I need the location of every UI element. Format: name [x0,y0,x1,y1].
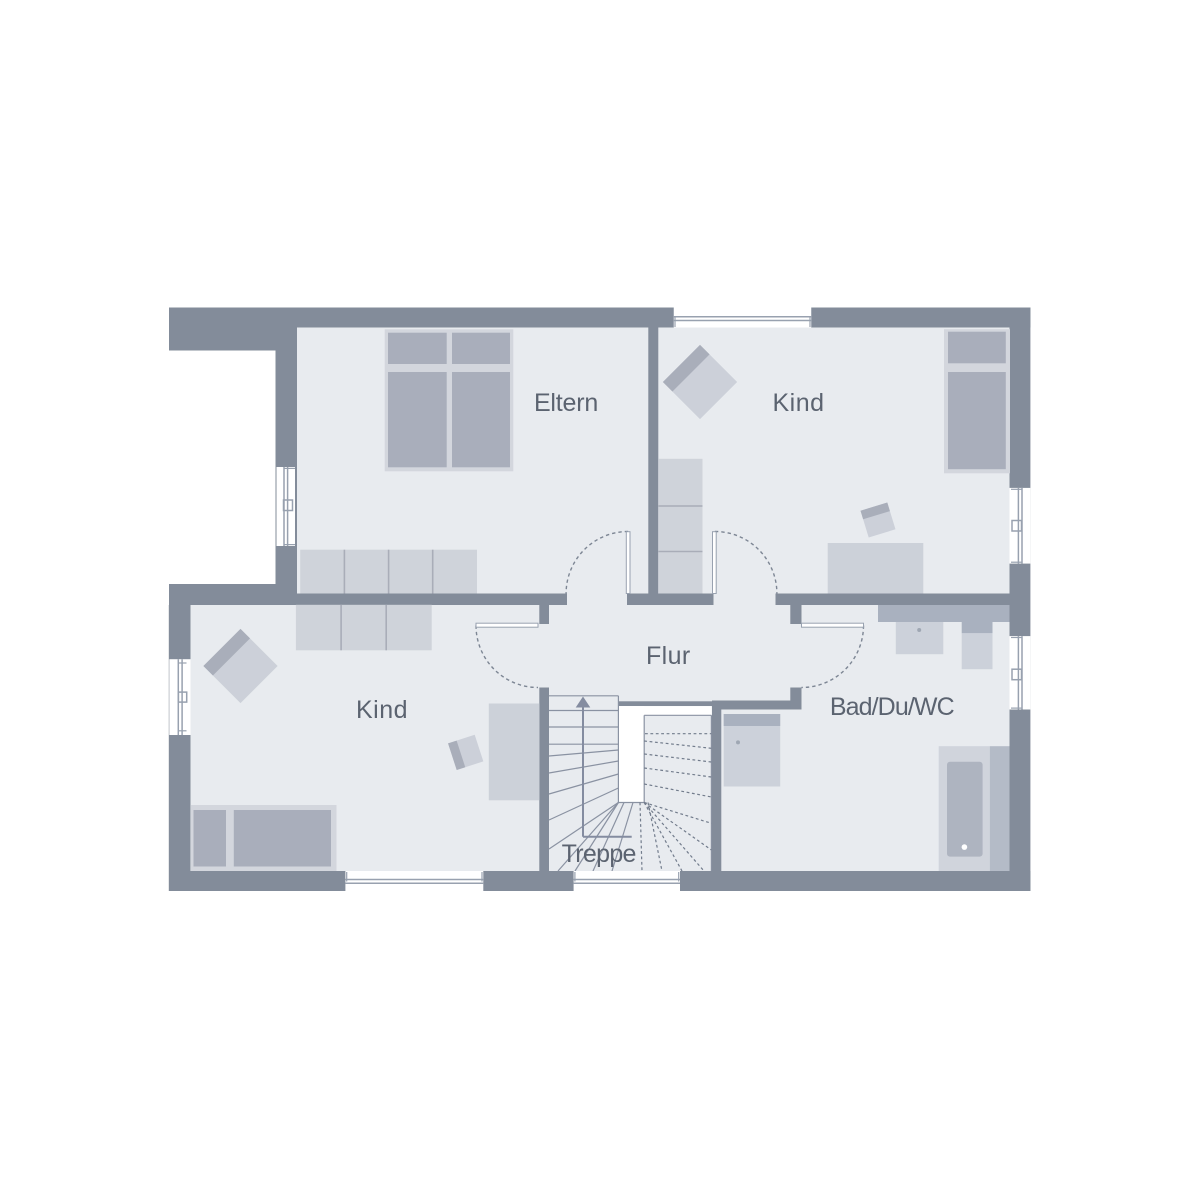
svg-text:Treppe: Treppe [562,840,636,868]
svg-text:Eltern: Eltern [534,389,598,417]
svg-text:Bad/Du/WC: Bad/Du/WC [830,693,955,721]
svg-text:Kind: Kind [356,696,408,724]
svg-text:Kind: Kind [772,389,824,417]
svg-text:Flur: Flur [646,642,691,670]
